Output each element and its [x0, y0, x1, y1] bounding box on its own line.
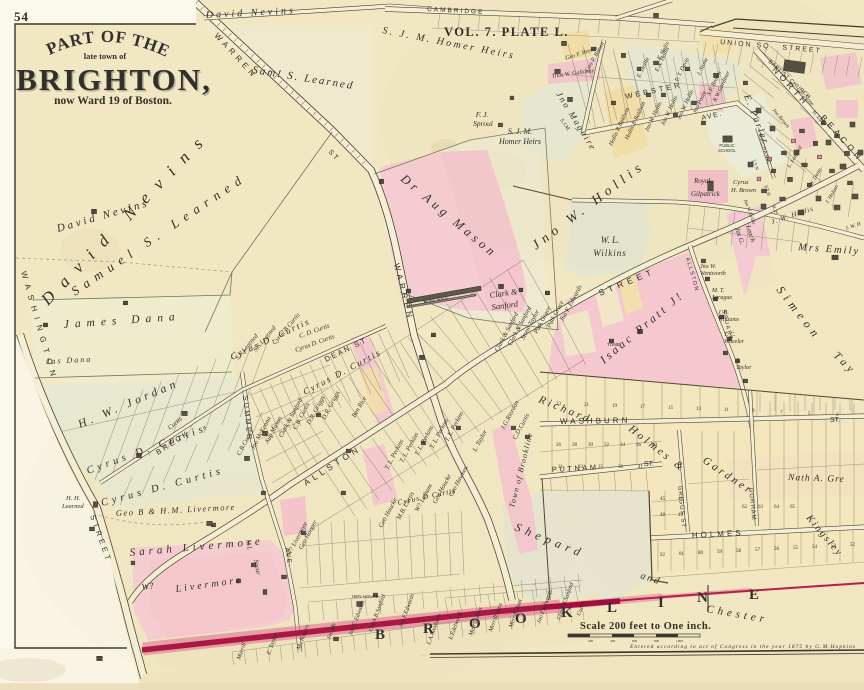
svg-text:SCHOOL: SCHOOL: [718, 148, 736, 153]
svg-text:S.: S.: [736, 358, 741, 364]
svg-text:K: K: [561, 605, 573, 621]
svg-text:S. J. M.: S. J. M.: [508, 127, 532, 136]
svg-text:Entered according to act of Co: Entered according to act of Congress in …: [629, 643, 855, 650]
svg-text:38: 38: [618, 465, 624, 470]
svg-text:21: 21: [584, 403, 590, 408]
svg-text:64: 64: [774, 505, 780, 510]
svg-text:81: 81: [679, 552, 685, 557]
svg-text:O: O: [469, 616, 481, 632]
svg-text:23: 23: [556, 402, 562, 407]
svg-text:E: E: [749, 587, 759, 603]
svg-text:Nath A. Gre: Nath A. Gre: [787, 473, 845, 485]
svg-text:11: 11: [724, 408, 729, 413]
svg-text:W?: W?: [141, 580, 155, 592]
svg-text:33: 33: [578, 465, 584, 470]
svg-text:F. J.: F. J.: [475, 110, 489, 119]
svg-text:52: 52: [850, 543, 856, 548]
svg-text:ST.: ST.: [830, 417, 840, 424]
svg-text:N: N: [697, 590, 708, 606]
svg-text:32: 32: [604, 443, 610, 448]
svg-text:Wentworth: Wentworth: [700, 271, 726, 277]
svg-text:62: 62: [742, 505, 748, 510]
svg-text:W. L.: W. L.: [601, 235, 619, 245]
svg-text:O: O: [515, 611, 527, 627]
svg-text:Scale 200 feet to One inch.: Scale 200 feet to One inch.: [580, 621, 711, 632]
svg-text:65: 65: [790, 505, 796, 510]
svg-text:BRIGHTON,: BRIGHTON,: [16, 62, 212, 97]
svg-text:TOMB: TOMB: [607, 342, 620, 347]
svg-text:59: 59: [717, 550, 723, 555]
svg-text:49: 49: [678, 513, 684, 518]
svg-text:ST.: ST.: [644, 461, 654, 468]
svg-text:J. B.: J. B.: [718, 310, 729, 316]
svg-text:34: 34: [620, 443, 626, 448]
svg-text:Taylor: Taylor: [736, 365, 752, 371]
svg-text:53: 53: [831, 544, 837, 549]
svg-text:55: 55: [793, 546, 799, 551]
svg-text:Williams: Williams: [718, 317, 740, 323]
svg-text:92: 92: [660, 553, 666, 558]
svg-text:40: 40: [652, 443, 658, 448]
svg-text:now Ward 19 of Boston.: now Ward 19 of Boston.: [54, 95, 172, 107]
svg-text:HEN HOUSE: HEN HOUSE: [352, 594, 379, 599]
svg-text:800: 800: [654, 639, 660, 643]
svg-text:26: 26: [556, 443, 562, 448]
svg-text:WASHBURN: WASHBURN: [560, 416, 631, 426]
svg-text:Learned: Learned: [61, 503, 84, 510]
svg-text:46: 46: [678, 497, 684, 502]
svg-text:Wheeler: Wheeler: [724, 339, 745, 345]
svg-text:R: R: [423, 621, 434, 637]
svg-text:63: 63: [758, 505, 764, 510]
svg-text:30: 30: [588, 443, 594, 448]
svg-text:35: 35: [598, 465, 604, 470]
svg-text:57: 57: [755, 548, 761, 553]
svg-text:17: 17: [640, 405, 646, 410]
svg-text:28: 28: [572, 443, 578, 448]
svg-text:600: 600: [632, 639, 638, 643]
svg-text:200: 200: [588, 639, 594, 643]
svg-text:late town of: late town of: [84, 51, 127, 61]
svg-text:Homer Heirs: Homer Heirs: [498, 137, 541, 146]
svg-text:1000: 1000: [676, 639, 683, 643]
svg-text:I: I: [658, 595, 664, 611]
svg-text:54: 54: [812, 545, 818, 550]
svg-text:Royal: Royal: [693, 177, 710, 185]
svg-text:Jno W.: Jno W.: [700, 264, 716, 270]
svg-text:56: 56: [774, 547, 780, 552]
svg-text:M. T.: M. T.: [711, 288, 724, 294]
svg-text:15: 15: [668, 406, 674, 411]
svg-text:13: 13: [696, 407, 702, 412]
svg-text:Cyrus: Cyrus: [733, 179, 749, 186]
svg-text:H. Brown: H. Brown: [730, 187, 756, 194]
svg-text:41: 41: [638, 465, 644, 470]
svg-text:Gilpatrick: Gilpatrick: [691, 190, 721, 198]
svg-text:L: L: [607, 600, 617, 616]
svg-text:19: 19: [612, 404, 618, 409]
svg-text:Sproul: Sproul: [473, 119, 493, 128]
svg-text:54: 54: [14, 9, 29, 24]
svg-text:Sprague: Sprague: [712, 295, 732, 301]
svg-text:T. C.: T. C.: [724, 332, 735, 338]
svg-text:80: 80: [698, 551, 704, 556]
svg-text:58: 58: [736, 549, 742, 554]
svg-text:B: B: [375, 627, 385, 643]
svg-text:H. H.: H. H.: [65, 495, 81, 502]
svg-text:31: 31: [558, 465, 564, 470]
svg-text:36: 36: [636, 443, 642, 448]
svg-text:Wilkins: Wilkins: [593, 248, 627, 258]
svg-text:400: 400: [610, 639, 616, 643]
svg-text:45: 45: [660, 497, 666, 502]
svg-text:48: 48: [660, 513, 666, 518]
svg-text:VOL. 7. PLATE L.: VOL. 7. PLATE L.: [444, 25, 569, 39]
